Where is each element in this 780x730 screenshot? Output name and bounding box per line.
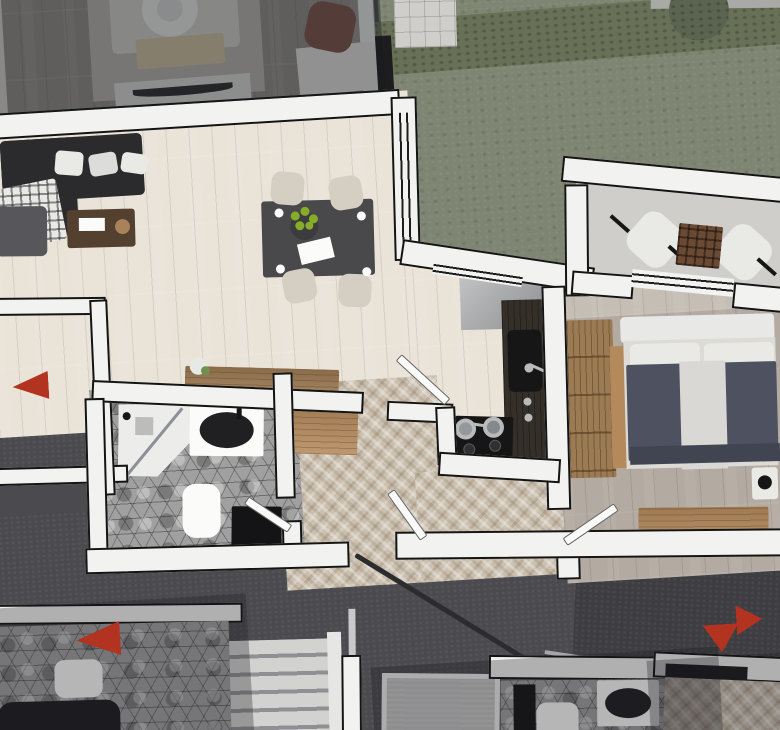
dim-neighbor-left [0, 593, 259, 730]
dining-chair [327, 174, 365, 212]
sofa-pillow [54, 150, 84, 176]
dining-chair [338, 273, 372, 307]
vanity-faucet [237, 407, 242, 419]
garden-patio-tiles [393, 0, 457, 48]
sofa-pillow [88, 151, 119, 177]
vanity-basin [200, 412, 254, 448]
pouf [0, 206, 47, 256]
terrace-table [675, 223, 723, 269]
bedroom-nwall-left [571, 270, 635, 299]
floor-plan-rotated-scene [0, 0, 780, 730]
bath-right-wall [272, 372, 295, 498]
sofa-pillow [120, 151, 149, 175]
toilet [182, 484, 220, 538]
coffee-table-books [79, 218, 105, 231]
wardrobe [566, 319, 616, 478]
dim-neighbor-right [647, 647, 780, 730]
south-wall-right [395, 528, 780, 560]
dining-chair [270, 171, 305, 206]
kitchen-sink [507, 329, 543, 392]
shower-drain [135, 417, 153, 435]
stair-side-wall [341, 655, 362, 730]
floor-plan-render [0, 0, 780, 730]
